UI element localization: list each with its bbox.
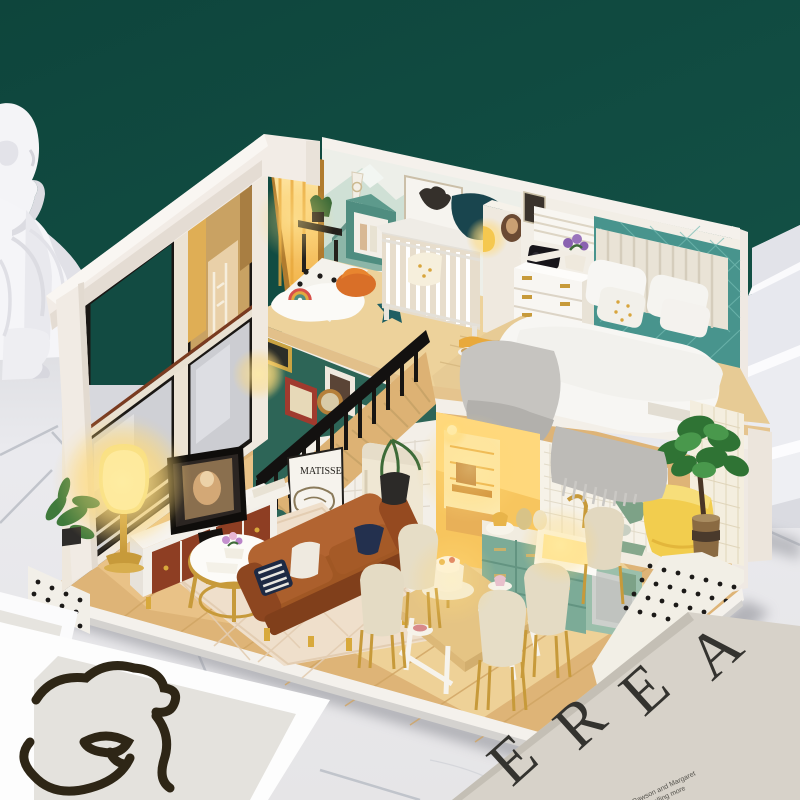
svg-text:MATISSE: MATISSE	[300, 466, 342, 477]
